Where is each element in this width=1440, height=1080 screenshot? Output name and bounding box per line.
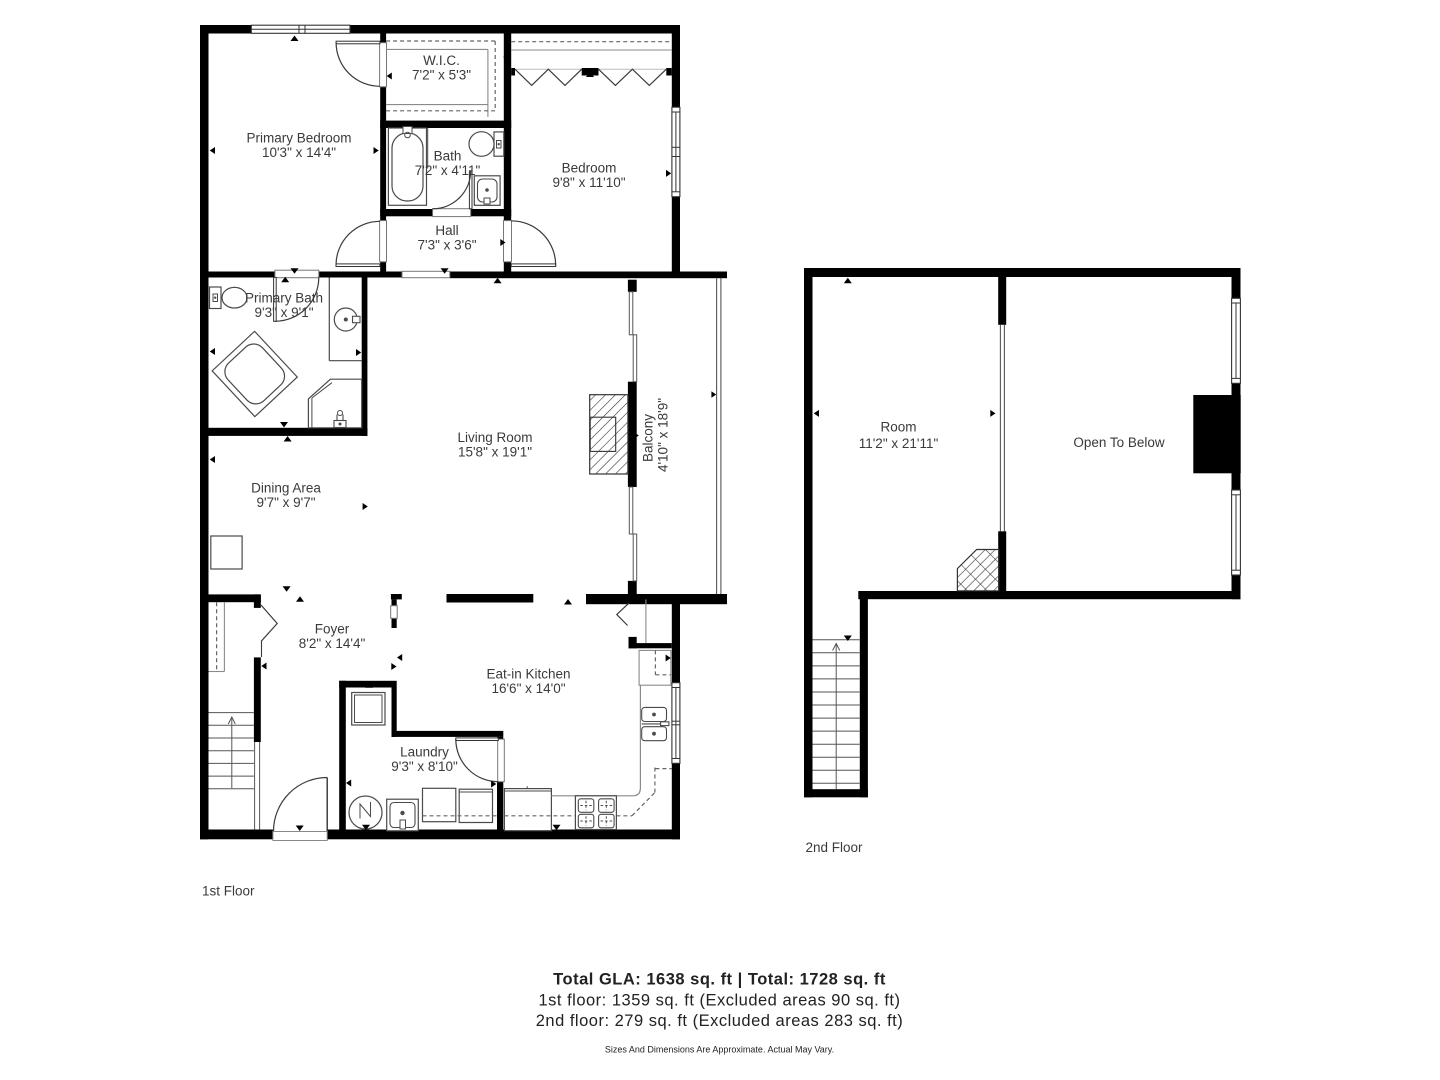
svg-text:Dining Area: Dining Area: [251, 481, 321, 496]
svg-text:2nd Floor: 2nd Floor: [806, 840, 864, 855]
svg-text:2nd floor: 279 sq. ft (Exclude: 2nd floor: 279 sq. ft (Excluded areas 28…: [536, 1012, 904, 1030]
svg-text:Open To Below: Open To Below: [1073, 435, 1165, 450]
svg-text:Primary Bath: Primary Bath: [245, 291, 323, 306]
svg-text:Laundry: Laundry: [400, 745, 449, 760]
svg-text:11'2" x 21'11": 11'2" x 21'11": [859, 436, 939, 451]
svg-text:Sizes And Dimensions Are Appro: Sizes And Dimensions Are Approximate. Ac…: [605, 1045, 834, 1055]
svg-text:Eat-in Kitchen: Eat-in Kitchen: [486, 667, 570, 682]
svg-text:W.I.C.: W.I.C.: [423, 53, 460, 68]
svg-text:Balcony: Balcony: [641, 414, 656, 462]
svg-text:Primary Bedroom: Primary Bedroom: [246, 130, 351, 145]
svg-text:10'3" x 14'4": 10'3" x 14'4": [262, 145, 336, 160]
svg-text:7'2" x 4'11": 7'2" x 4'11": [415, 163, 481, 178]
svg-text:Hall: Hall: [435, 223, 458, 238]
svg-text:8'2" x 14'4": 8'2" x 14'4": [299, 636, 366, 651]
svg-text:16'6" x 14'0": 16'6" x 14'0": [491, 681, 565, 696]
svg-text:9'3" x 8'10": 9'3" x 8'10": [391, 759, 458, 774]
svg-text:Room: Room: [880, 420, 916, 435]
svg-text:4'10" x 18'9": 4'10" x 18'9": [656, 398, 671, 472]
svg-text:7'3" x 3'6": 7'3" x 3'6": [417, 238, 476, 253]
svg-text:1st floor: 1359 sq. ft (Exclud: 1st floor: 1359 sq. ft (Excluded areas 9…: [538, 991, 900, 1009]
svg-text:Bedroom: Bedroom: [562, 161, 617, 176]
svg-text:9'7" x 9'7": 9'7" x 9'7": [256, 495, 315, 510]
svg-text:Bath: Bath: [434, 149, 462, 164]
svg-text:15'8" x 19'1": 15'8" x 19'1": [458, 445, 532, 460]
svg-text:7'2" x 5'3": 7'2" x 5'3": [412, 68, 471, 83]
svg-text:1st Floor: 1st Floor: [202, 884, 255, 899]
svg-text:Total GLA: 1638 sq. ft | Total: Total GLA: 1638 sq. ft | Total: 1728 sq.…: [553, 971, 886, 989]
svg-text:9'3" x 9'1": 9'3" x 9'1": [254, 305, 313, 320]
svg-text:Foyer: Foyer: [315, 622, 350, 637]
svg-text:Living Room: Living Room: [457, 430, 532, 445]
svg-text:9'8" x 11'10": 9'8" x 11'10": [552, 175, 625, 190]
